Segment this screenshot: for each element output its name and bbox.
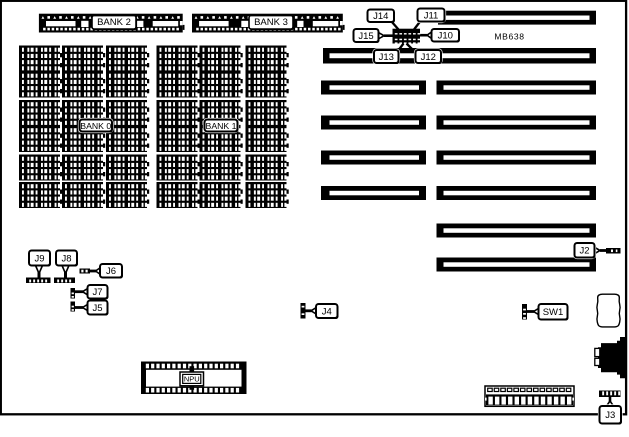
svg-text:MB638: MB638	[494, 32, 524, 42]
svg-text:BANK 2: BANK 2	[97, 17, 131, 28]
svg-text:J8: J8	[61, 253, 71, 264]
svg-text:J10: J10	[438, 31, 453, 42]
svg-text:J9: J9	[34, 253, 44, 264]
svg-text:J6: J6	[106, 266, 116, 277]
svg-text:J11: J11	[424, 10, 439, 21]
svg-text:J2: J2	[579, 246, 589, 257]
svg-text:J3: J3	[605, 410, 615, 421]
svg-text:J13: J13	[379, 52, 394, 63]
svg-text:J7: J7	[92, 287, 102, 298]
svg-text:BANK 0: BANK 0	[80, 121, 111, 131]
svg-text:J4: J4	[322, 306, 332, 317]
svg-text:J5: J5	[92, 303, 102, 314]
svg-text:BANK 3: BANK 3	[254, 17, 288, 28]
svg-text:NPU: NPU	[184, 374, 200, 383]
svg-text:J14: J14	[373, 11, 388, 22]
svg-text:BANK 1: BANK 1	[206, 121, 237, 131]
svg-text:J12: J12	[421, 52, 436, 63]
svg-text:J15: J15	[358, 31, 373, 42]
svg-text:SW1: SW1	[543, 307, 564, 318]
